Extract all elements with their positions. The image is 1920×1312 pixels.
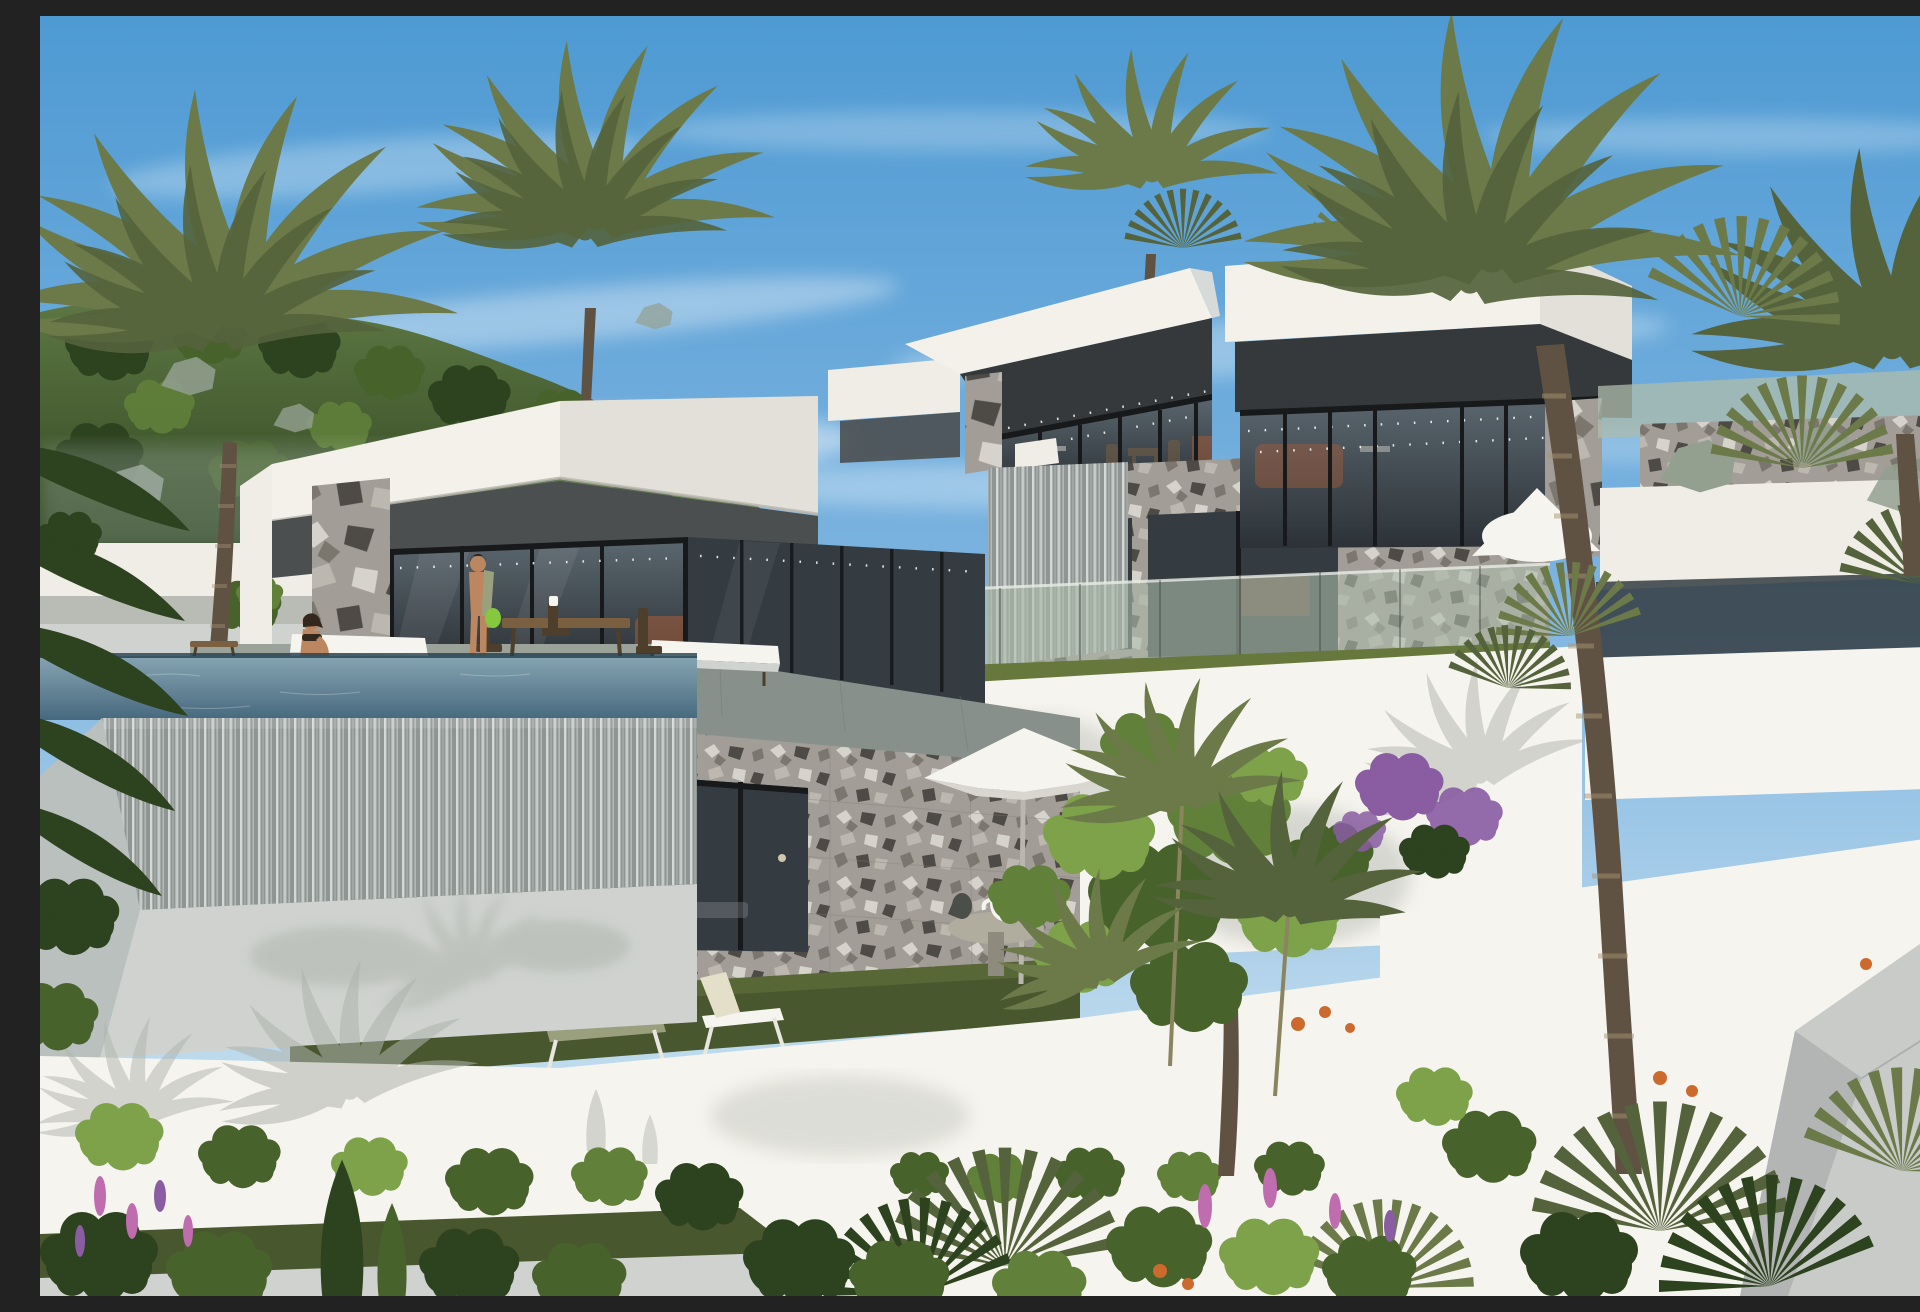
architectural-render: Photorealistic render of three modern wh… [40, 16, 1920, 1296]
middle-stone-pier [965, 372, 1002, 474]
dark-planter [952, 893, 972, 919]
left-return-wall [240, 464, 272, 668]
interior-lamp [778, 854, 786, 862]
green-bag [485, 608, 501, 628]
pool-cascade [102, 718, 697, 910]
